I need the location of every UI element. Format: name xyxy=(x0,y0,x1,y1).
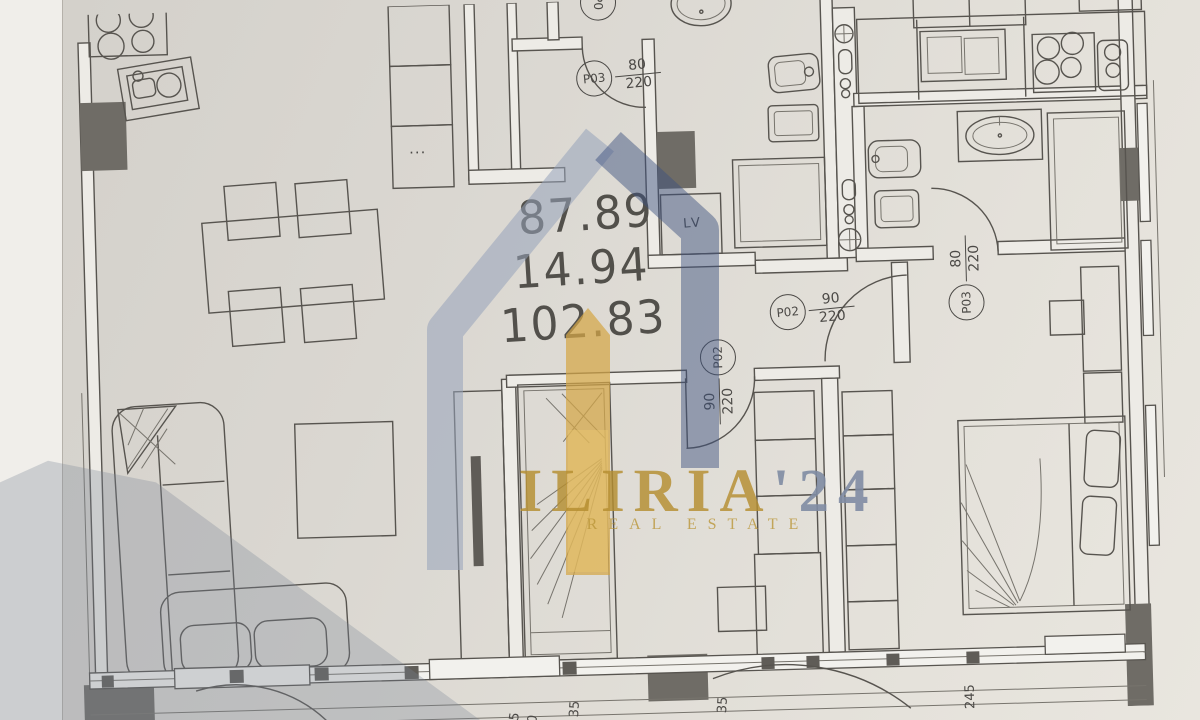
double-bed xyxy=(958,416,1130,615)
master-wardrobe-west xyxy=(842,391,899,650)
tv xyxy=(471,456,484,566)
area-total: 102.83 xyxy=(499,289,668,353)
door-size: 90220 xyxy=(807,290,856,326)
bathroom-fixtures xyxy=(654,0,827,255)
nightstand xyxy=(1050,300,1085,335)
chair xyxy=(300,285,356,343)
master-wardrobe-east xyxy=(1049,266,1123,424)
door-label-master: P03 80220 xyxy=(947,240,985,321)
dim-0: 0 xyxy=(525,714,541,720)
dining-set xyxy=(199,174,387,350)
toilet xyxy=(767,53,820,94)
kids-desk xyxy=(717,586,766,631)
door-id-badge: P02 xyxy=(768,292,807,331)
cabinet-dots: ··· xyxy=(409,143,427,161)
kitchen-stove xyxy=(88,3,168,60)
area-balcony: 14.94 xyxy=(512,237,651,299)
ensuite-sink xyxy=(957,109,1042,161)
ensuite-toilet xyxy=(868,140,921,178)
door-label-kids-room: 90220 P02 xyxy=(699,320,738,425)
chair xyxy=(228,287,284,346)
coffee-table xyxy=(295,421,396,538)
floor-plan: 87.89 14.94 102.83 P03 80220 P0 90220 P0… xyxy=(0,0,1200,720)
chair xyxy=(224,182,280,240)
door-size: 90220 xyxy=(703,378,736,425)
shower xyxy=(732,157,826,248)
plan-linework xyxy=(0,0,1200,720)
dim-35-right: 35 xyxy=(715,696,731,713)
door-size: 80220 xyxy=(949,235,982,282)
chair xyxy=(295,180,351,238)
dim-35-left: 35 xyxy=(567,700,583,717)
door-id-badge: P03 xyxy=(575,59,614,98)
neighbor-stove xyxy=(1032,32,1096,93)
door-id-badge: P02 xyxy=(699,339,736,376)
ensuite-shower xyxy=(1047,111,1128,250)
tv-cabinet xyxy=(454,390,510,661)
dim-balcony-depth: 245 xyxy=(962,669,978,709)
kids-wardrobe xyxy=(712,391,823,658)
dim-5: 5 xyxy=(507,712,523,720)
bidet xyxy=(768,104,819,141)
floor-plan-photo: 87.89 14.94 102.83 P03 80220 P0 90220 P0… xyxy=(0,0,1200,720)
bed-pillows xyxy=(1080,430,1121,556)
washing-machine-label: LV xyxy=(683,215,703,231)
sofa-pillow xyxy=(118,406,180,474)
sofa xyxy=(111,394,351,685)
area-net: 87.89 xyxy=(516,183,655,245)
door-size: 80220 xyxy=(614,56,663,92)
door-id-badge: P03 xyxy=(948,284,985,321)
ensuite-bidet xyxy=(874,190,919,228)
single-bed xyxy=(518,382,618,660)
neighbor-sink xyxy=(920,29,1006,81)
kitchen-sink xyxy=(118,57,200,121)
ensuite-bathroom xyxy=(867,107,1128,255)
